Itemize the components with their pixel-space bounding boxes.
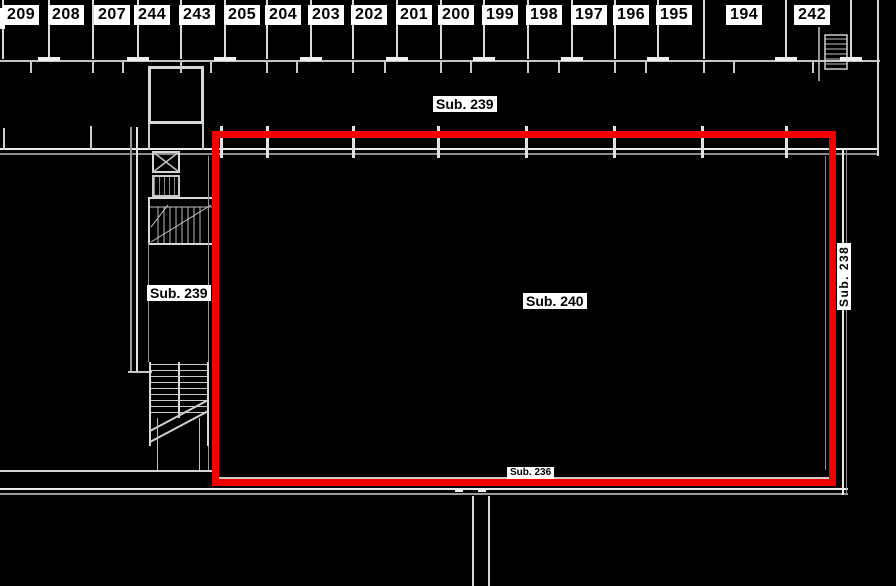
door-jamb-tick: [645, 62, 647, 73]
lower-partition-wall: [488, 496, 490, 586]
room-label: 200: [438, 5, 474, 25]
room-label: 199: [482, 5, 518, 25]
wall-end-cap: [840, 57, 862, 61]
door-jamb-tick: [92, 62, 94, 73]
door-jamb-tick: [527, 62, 529, 73]
wall-end-cap: [386, 57, 408, 61]
room-label: 244: [134, 5, 170, 25]
room-label: 194: [726, 5, 762, 25]
door-jamb-tick: [122, 62, 124, 73]
door-jamb-tick: [30, 62, 32, 73]
door-jamb-tick: [558, 62, 560, 73]
door-jamb-tick: [296, 62, 298, 73]
wall-end-cap: [561, 57, 583, 61]
stair-lower-wall: [157, 418, 158, 470]
wall-end-cap: [127, 57, 149, 61]
wall-partition: [703, 0, 705, 59]
room-label: 208: [48, 5, 84, 25]
door-jamb-tick: [266, 62, 268, 73]
wall-end-cap: [473, 57, 495, 61]
room-label: 203: [308, 5, 344, 25]
shaft-room: [148, 66, 204, 124]
stairs-detail-icon: [148, 197, 214, 245]
door-jamb-tick: [352, 62, 354, 73]
elevator-x-icon: [152, 151, 180, 173]
area-label-sub238-vertical: Sub. 238: [837, 243, 851, 310]
wall-partition: [850, 0, 852, 59]
room-label: 242: [794, 5, 830, 25]
door-jamb-tick: [384, 62, 386, 73]
wall-partition: [785, 0, 787, 59]
door-jamb-tick: [455, 489, 463, 492]
stair-corridor-wall-outer: [130, 127, 132, 371]
area-label-sub239-left: Sub. 239: [147, 285, 211, 301]
room-label: 209: [3, 5, 39, 25]
lower-partition-wall: [472, 496, 474, 586]
room-label: 205: [224, 5, 260, 25]
door-jamb-tick: [478, 489, 486, 492]
wall-stub: [3, 128, 5, 150]
right-wall-bright: [842, 150, 844, 495]
room-label: 195: [656, 5, 692, 25]
room-label: 201: [396, 5, 432, 25]
door-jamb-tick: [470, 62, 472, 73]
room-label: 196: [613, 5, 649, 25]
right-wall-dim: [846, 150, 847, 495]
wall-end-cap: [775, 57, 797, 61]
stair-stringer-right: [207, 362, 209, 446]
service-box: [152, 175, 180, 197]
wall-end-cap: [300, 57, 322, 61]
door-jamb-tick: [614, 62, 616, 73]
highlight-rectangle[interactable]: [212, 131, 836, 486]
stairwell-wall: [148, 243, 149, 362]
door-jamb-tick: [180, 62, 182, 73]
wall-stub: [90, 126, 92, 150]
room-label: 243: [179, 5, 215, 25]
stair-center-rail: [178, 362, 180, 418]
room-label: 204: [265, 5, 301, 25]
wall-end-cap: [38, 57, 60, 61]
door-jamb-tick: [703, 62, 705, 73]
room-label: 202: [351, 5, 387, 25]
door-jamb-tick: [733, 62, 735, 73]
wall-end-cap: [647, 57, 669, 61]
south-wall-outer-dim: [0, 493, 848, 495]
right-exterior-wall: [877, 0, 879, 156]
ladder-icon: [817, 27, 849, 81]
room-label: 197: [571, 5, 607, 25]
stair-lower-wall: [199, 418, 200, 470]
room-label: 198: [526, 5, 562, 25]
shaft-side-wall: [202, 124, 204, 150]
shaft-side-wall: [148, 124, 150, 150]
door-jamb-tick: [440, 62, 442, 73]
room-label: 207: [94, 5, 130, 25]
area-label-sub239-top: Sub. 239: [433, 96, 497, 112]
door-jamb-tick: [812, 62, 814, 73]
stair-corridor-wall-inner: [136, 127, 138, 371]
door-jamb-tick: [210, 62, 212, 73]
south-wall-left: [0, 470, 213, 472]
floorplan-canvas: Sub. 239 Sub. 239 Sub. 240 Sub. 238 Sub.…: [0, 0, 896, 586]
south-wall-outer-bright: [0, 488, 848, 490]
wall-end-cap: [214, 57, 236, 61]
